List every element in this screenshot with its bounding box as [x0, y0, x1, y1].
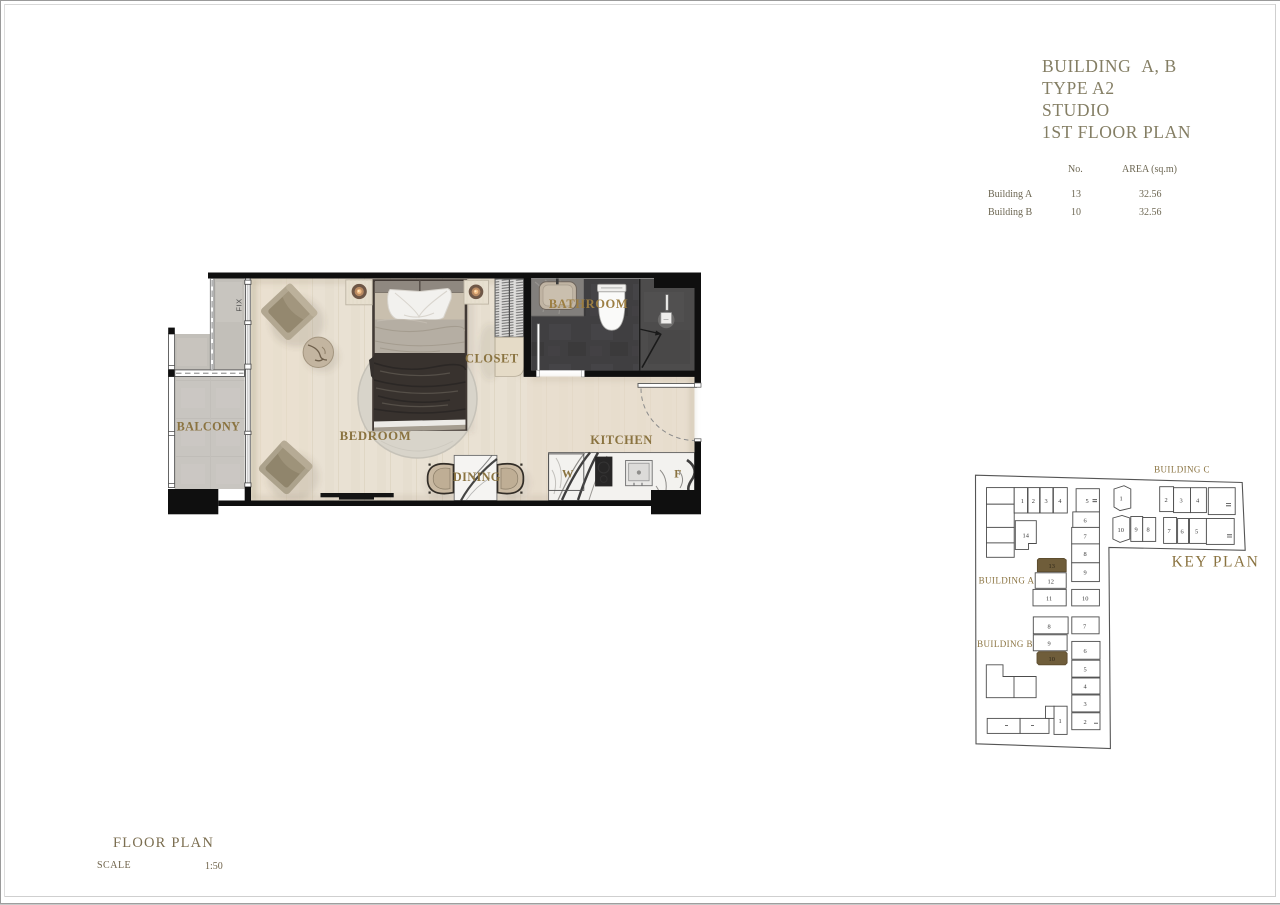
svg-text:10: 10 — [1082, 596, 1088, 603]
svg-text:5: 5 — [1084, 667, 1087, 674]
svg-text:10: 10 — [1049, 656, 1055, 663]
svg-text:13: 13 — [1049, 563, 1055, 570]
svg-text:CLOSET: CLOSET — [465, 352, 519, 366]
svg-text:BUILDING A: BUILDING A — [979, 576, 1035, 586]
svg-text:FIX: FIX — [235, 298, 244, 311]
svg-text:1: 1 — [1021, 498, 1024, 505]
svg-text:5: 5 — [1086, 498, 1089, 505]
svg-text:1: 1 — [1120, 496, 1123, 503]
svg-text:2: 2 — [1084, 719, 1087, 726]
svg-text:9: 9 — [1135, 527, 1138, 534]
svg-text:5: 5 — [1195, 529, 1198, 536]
svg-text:BUILDING C: BUILDING C — [1154, 465, 1210, 475]
svg-text:1: 1 — [1059, 718, 1062, 725]
svg-text:9: 9 — [1084, 570, 1087, 577]
svg-text:BATHROOM: BATHROOM — [549, 297, 629, 311]
svg-text:3: 3 — [1180, 498, 1183, 505]
svg-text:3: 3 — [1045, 498, 1048, 505]
svg-text:KEY PLAN: KEY PLAN — [1172, 554, 1260, 571]
svg-text:DINING: DINING — [453, 470, 501, 484]
svg-text:8: 8 — [1048, 624, 1051, 631]
svg-text:BALCONY: BALCONY — [177, 420, 241, 434]
svg-text:8: 8 — [1084, 551, 1087, 558]
svg-text:3: 3 — [1084, 701, 1087, 708]
svg-text:KITCHEN: KITCHEN — [590, 433, 653, 447]
svg-text:11: 11 — [1046, 596, 1052, 603]
svg-text:2: 2 — [1032, 498, 1035, 505]
svg-text:10: 10 — [1118, 527, 1124, 534]
svg-text:8: 8 — [1147, 527, 1150, 534]
svg-text:BUILDING B: BUILDING B — [977, 639, 1033, 649]
svg-text:14: 14 — [1023, 533, 1030, 540]
svg-text:F: F — [674, 469, 681, 481]
svg-text:6: 6 — [1084, 648, 1087, 655]
svg-text:6: 6 — [1084, 518, 1087, 525]
svg-text:W: W — [562, 468, 574, 480]
svg-text:9: 9 — [1048, 641, 1051, 648]
svg-text:BEDROOM: BEDROOM — [340, 429, 412, 443]
svg-text:12: 12 — [1048, 579, 1054, 586]
svg-text:2: 2 — [1165, 497, 1168, 504]
svg-text:6: 6 — [1181, 529, 1184, 536]
